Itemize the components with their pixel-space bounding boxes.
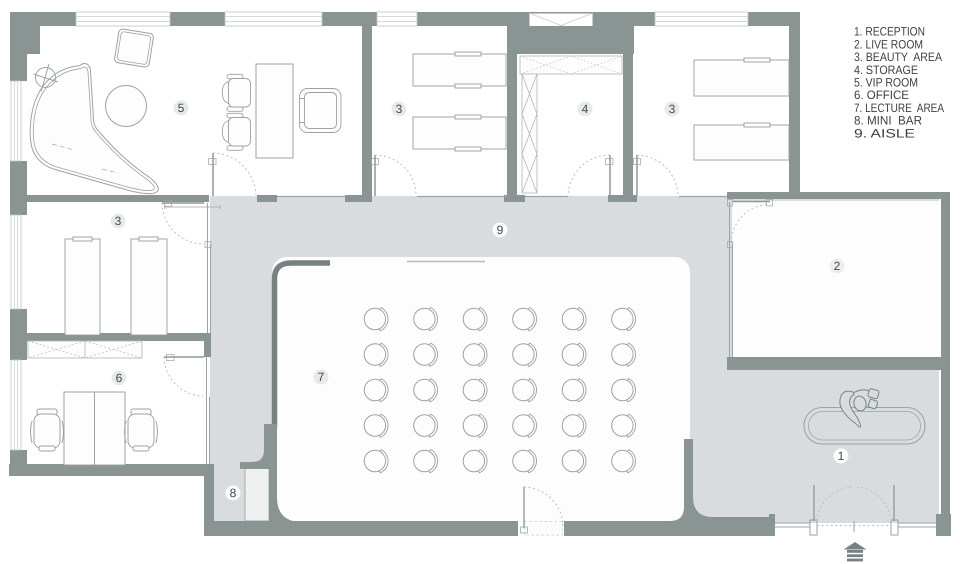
svg-text:8: 8 xyxy=(230,486,237,500)
svg-text:4: 4 xyxy=(582,102,589,116)
svg-text:2: 2 xyxy=(834,259,841,273)
svg-text:6: 6 xyxy=(116,371,123,385)
svg-text:9. AISLE: 9. AISLE xyxy=(854,126,915,140)
svg-text:5: 5 xyxy=(178,101,185,115)
svg-text:9: 9 xyxy=(497,223,504,237)
svg-text:3: 3 xyxy=(396,102,403,116)
svg-text:1: 1 xyxy=(838,449,845,463)
svg-text:7: 7 xyxy=(318,370,325,384)
svg-text:3: 3 xyxy=(669,102,676,116)
svg-text:3: 3 xyxy=(115,214,122,228)
